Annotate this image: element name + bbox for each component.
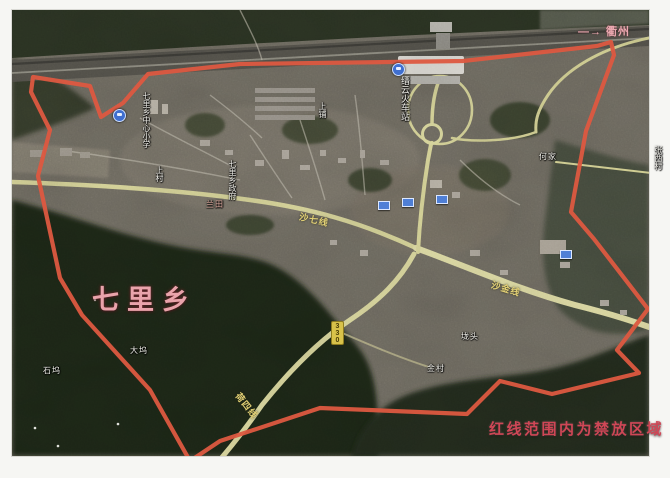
satellite-map-art [0, 0, 670, 478]
scanned-map-page: 七里乡 红线范围内为禁放区域 —→ 衢州 缙云火车站 七里乡中心小学 上村 七里… [0, 0, 670, 478]
texture-grain [12, 10, 649, 456]
